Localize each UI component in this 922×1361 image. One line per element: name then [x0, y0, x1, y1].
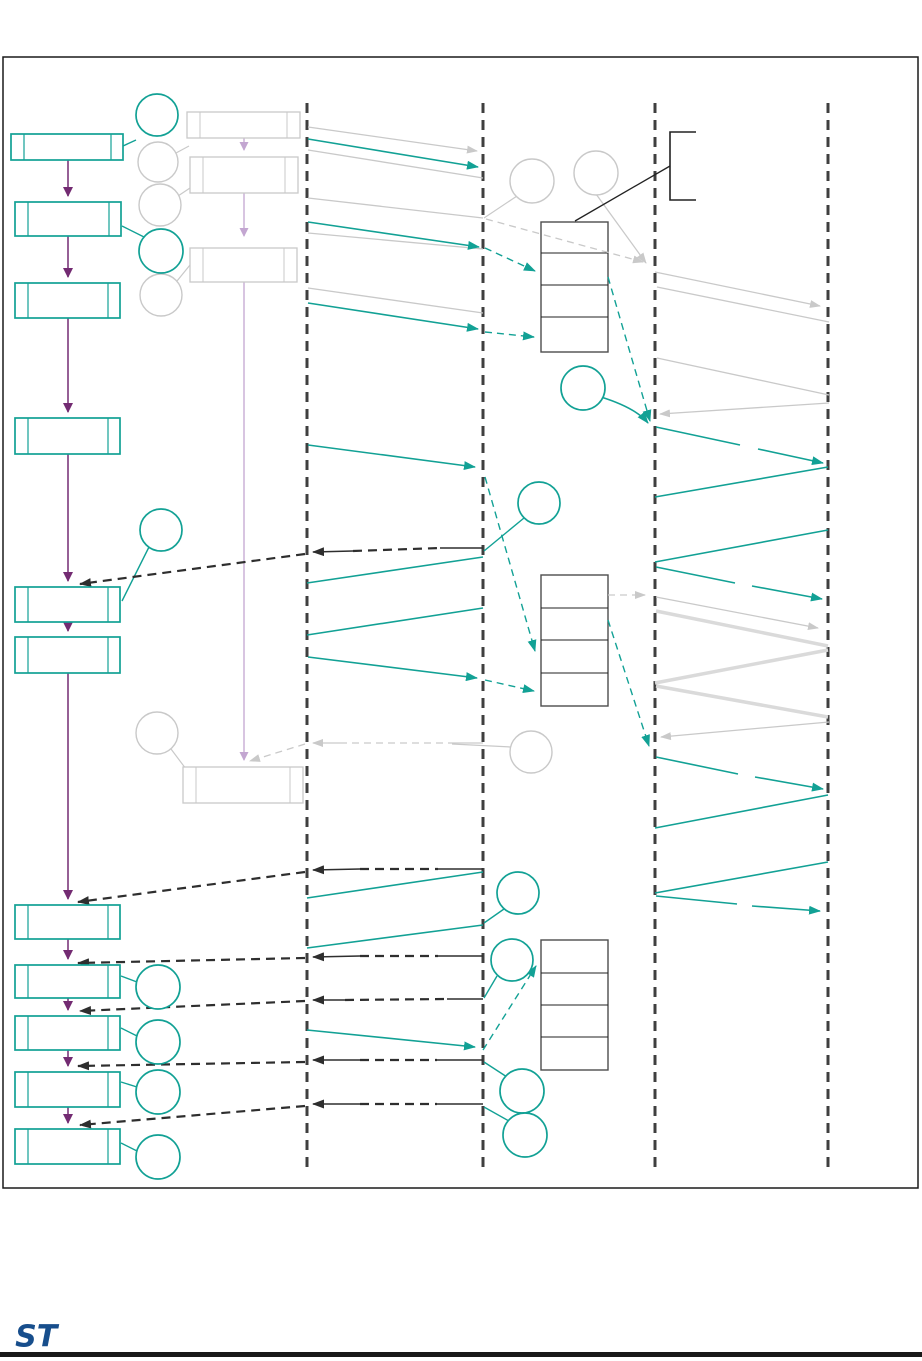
dark-dash-arrow [78, 1062, 305, 1066]
dark-dash-arrow [78, 958, 305, 963]
teal-arrow [308, 303, 478, 329]
flow-step-box-1 [11, 134, 123, 160]
st-logo-glyph: ST [15, 1320, 60, 1354]
gray-step-box-2 [190, 157, 298, 193]
gray-leader [176, 146, 189, 153]
flow-step-box-10 [15, 1072, 120, 1107]
teal-leader [121, 1082, 137, 1087]
gray-step-box-3 [190, 248, 297, 282]
flow-step-box-3 [15, 283, 120, 318]
teal-callout-circle-4 [561, 366, 605, 410]
gray-leader [178, 188, 190, 196]
thick-gray [656, 611, 828, 646]
flow-step-box-4 [15, 418, 120, 454]
teal-callout-circle-8 [500, 1069, 544, 1113]
teal-callout-circle-5 [518, 482, 560, 524]
teal-leader [484, 909, 504, 923]
teal-line [307, 557, 483, 583]
gray-callout-circle-5 [574, 151, 618, 195]
teal-line [307, 925, 483, 948]
teal-leader [484, 1107, 509, 1121]
dark-dash-arrow [78, 872, 305, 902]
teal-callout-circle-2 [139, 229, 183, 273]
flow-step-box-6 [15, 637, 120, 673]
teal-leader [484, 976, 497, 998]
teal-line [656, 427, 740, 445]
gray-callout-circle-4 [510, 159, 554, 203]
gray-leader [484, 196, 517, 218]
teal-callout-circle-10 [136, 965, 180, 1009]
gray-dash-arrow [250, 744, 305, 761]
gray-arrow [308, 127, 477, 151]
dark-arrow-stub [313, 956, 360, 957]
gray-leader [171, 749, 186, 769]
footer-rule [0, 1352, 922, 1357]
gray-line [308, 198, 483, 218]
teal-dash-arrow [485, 332, 534, 337]
flow-step-box-2 [15, 202, 121, 236]
teal-arrow [752, 586, 822, 599]
thick-gray [655, 650, 828, 683]
gray-line [657, 358, 829, 395]
teal-callout-circle-9 [503, 1113, 547, 1157]
teal-arrow [755, 777, 823, 789]
annotation-bracket [670, 132, 696, 200]
st-logo: ST [14, 1318, 72, 1354]
dark-arrow-stub [313, 869, 360, 870]
teal-callout-circle-12 [136, 1070, 180, 1114]
teal-dash-arrow [485, 248, 535, 271]
teal-line [655, 862, 828, 893]
dark-arrow-stub [313, 551, 353, 552]
teal-line [655, 467, 828, 497]
teal-dash-arrow [608, 620, 649, 746]
gray-leader [177, 265, 190, 281]
teal-arrow [308, 222, 479, 247]
gray-arrow [660, 403, 829, 414]
teal-arrow [752, 906, 820, 911]
flow-step-box-11 [15, 1129, 120, 1164]
gray-callout-circle-6 [136, 712, 178, 754]
flow-step-box-9 [15, 1016, 120, 1050]
gray-line [308, 288, 483, 313]
teal-curve-leader [601, 397, 648, 423]
teal-dash-arrow [608, 277, 650, 421]
gray-line [657, 287, 829, 322]
gray-arrow [655, 272, 820, 306]
gray-leader [452, 744, 511, 747]
teal-leader [121, 1143, 137, 1151]
teal-leader [122, 226, 146, 238]
packet-table-1 [541, 222, 608, 352]
flow-step-box-8 [15, 965, 120, 998]
gray-arrow [656, 597, 818, 628]
teal-arrow [308, 657, 477, 678]
teal-arrow [308, 445, 475, 467]
teal-line [655, 530, 828, 562]
teal-arrow [307, 1030, 475, 1047]
teal-dash-arrow [485, 680, 534, 691]
teal-callout-circle-7 [491, 939, 533, 981]
gray-callout-circle-2 [139, 184, 181, 226]
teal-arrow [308, 139, 478, 167]
teal-leader [122, 545, 150, 601]
teal-arrow [758, 449, 823, 463]
teal-line [307, 608, 483, 635]
gray-step-box-4 [183, 767, 303, 803]
teal-line [655, 795, 828, 828]
teal-leader [123, 140, 136, 146]
gray-step-box-1 [187, 112, 300, 138]
dark-dash-arrow [80, 1001, 305, 1011]
sequence-diagram [0, 0, 922, 1361]
gray-callout-circle-7 [510, 731, 552, 773]
gray-callout-circle-3 [140, 274, 182, 316]
teal-line [656, 757, 738, 774]
teal-callout-circle-13 [136, 1135, 180, 1179]
document-page: ST [0, 0, 922, 1361]
gray-callout-circle-1 [138, 142, 178, 182]
diagram-frame [3, 57, 918, 1188]
teal-callout-circle-11 [136, 1020, 180, 1064]
teal-callout-circle-1 [136, 94, 178, 136]
teal-callout-circle-3 [140, 509, 182, 551]
teal-line [656, 567, 735, 583]
teal-line [307, 872, 483, 898]
teal-leader [484, 1062, 507, 1077]
dark-dash-mid [353, 548, 440, 551]
flow-step-box-7 [15, 905, 120, 939]
teal-leader [484, 518, 524, 551]
dark-dash-arrow [80, 1106, 305, 1125]
teal-callout-circle-6 [497, 872, 539, 914]
teal-line [656, 896, 737, 904]
thick-gray [656, 686, 828, 717]
dark-dash-mid [345, 999, 447, 1000]
gray-arrow [661, 722, 829, 737]
teal-leader [121, 976, 137, 982]
dark-dash-arrow [80, 554, 305, 584]
flow-step-box-5 [15, 587, 120, 622]
teal-leader [121, 1028, 137, 1036]
st-logo-text: ST [15, 1320, 60, 1354]
